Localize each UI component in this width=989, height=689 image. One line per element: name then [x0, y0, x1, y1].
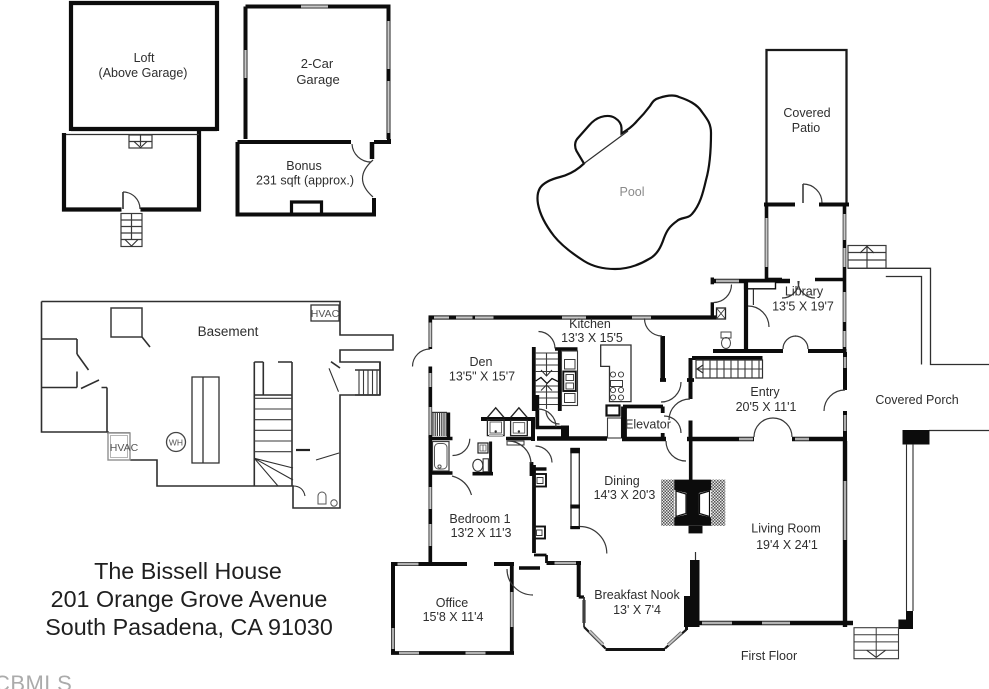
- svg-text:Bonus: Bonus: [286, 159, 321, 173]
- svg-text:Covered Porch: Covered Porch: [875, 393, 958, 407]
- svg-text:HVAC: HVAC: [311, 308, 340, 320]
- svg-text:13' X 7'4: 13' X 7'4: [613, 603, 661, 617]
- svg-text:Dining: Dining: [604, 474, 639, 488]
- svg-text:Office: Office: [436, 596, 468, 610]
- svg-text:Bedroom 1: Bedroom 1: [449, 512, 510, 526]
- svg-text:Pool: Pool: [619, 185, 644, 199]
- svg-text:Library: Library: [785, 285, 824, 299]
- svg-text:Den: Den: [470, 355, 493, 369]
- svg-text:14'3 X 20'3: 14'3 X 20'3: [594, 488, 656, 502]
- svg-text:15'8 X 11'4: 15'8 X 11'4: [423, 610, 484, 624]
- svg-text:Basement: Basement: [198, 324, 259, 339]
- svg-text:South Pasadena, CA 91030: South Pasadena, CA 91030: [45, 614, 333, 640]
- svg-text:HVAC: HVAC: [110, 442, 139, 454]
- svg-text:13'5" X 15'7: 13'5" X 15'7: [449, 370, 515, 384]
- svg-text:Entry: Entry: [750, 385, 780, 399]
- svg-text:20'5 X 11'1: 20'5 X 11'1: [736, 400, 797, 414]
- svg-text:Kitchen: Kitchen: [569, 317, 611, 331]
- svg-text:13'5 X 19'7: 13'5 X 19'7: [772, 300, 834, 314]
- svg-text:19'4 X 24'1: 19'4 X 24'1: [756, 538, 818, 552]
- svg-text:Living Room: Living Room: [751, 522, 820, 536]
- svg-text:CBMLS: CBMLS: [0, 671, 72, 689]
- svg-text:Covered: Covered: [783, 106, 830, 120]
- svg-text:Loft: Loft: [134, 51, 155, 65]
- svg-text:WH: WH: [169, 438, 183, 448]
- svg-text:231 sqft (approx.): 231 sqft (approx.): [256, 174, 354, 188]
- svg-text:Elevator: Elevator: [625, 418, 671, 432]
- svg-text:The Bissell House: The Bissell House: [94, 558, 282, 584]
- svg-text:2-Car: 2-Car: [301, 56, 334, 71]
- svg-text:Garage: Garage: [296, 72, 339, 87]
- svg-text:13'3 X 15'5: 13'3 X 15'5: [561, 331, 623, 345]
- svg-text:201 Orange Grove Avenue: 201 Orange Grove Avenue: [51, 586, 328, 612]
- svg-text:(Above Garage): (Above Garage): [99, 66, 188, 80]
- svg-text:13'2 X 11'3: 13'2 X 11'3: [451, 526, 512, 540]
- svg-text:Patio: Patio: [792, 121, 821, 135]
- svg-text:First Floor: First Floor: [741, 649, 797, 663]
- svg-text:Breakfast Nook: Breakfast Nook: [594, 588, 680, 602]
